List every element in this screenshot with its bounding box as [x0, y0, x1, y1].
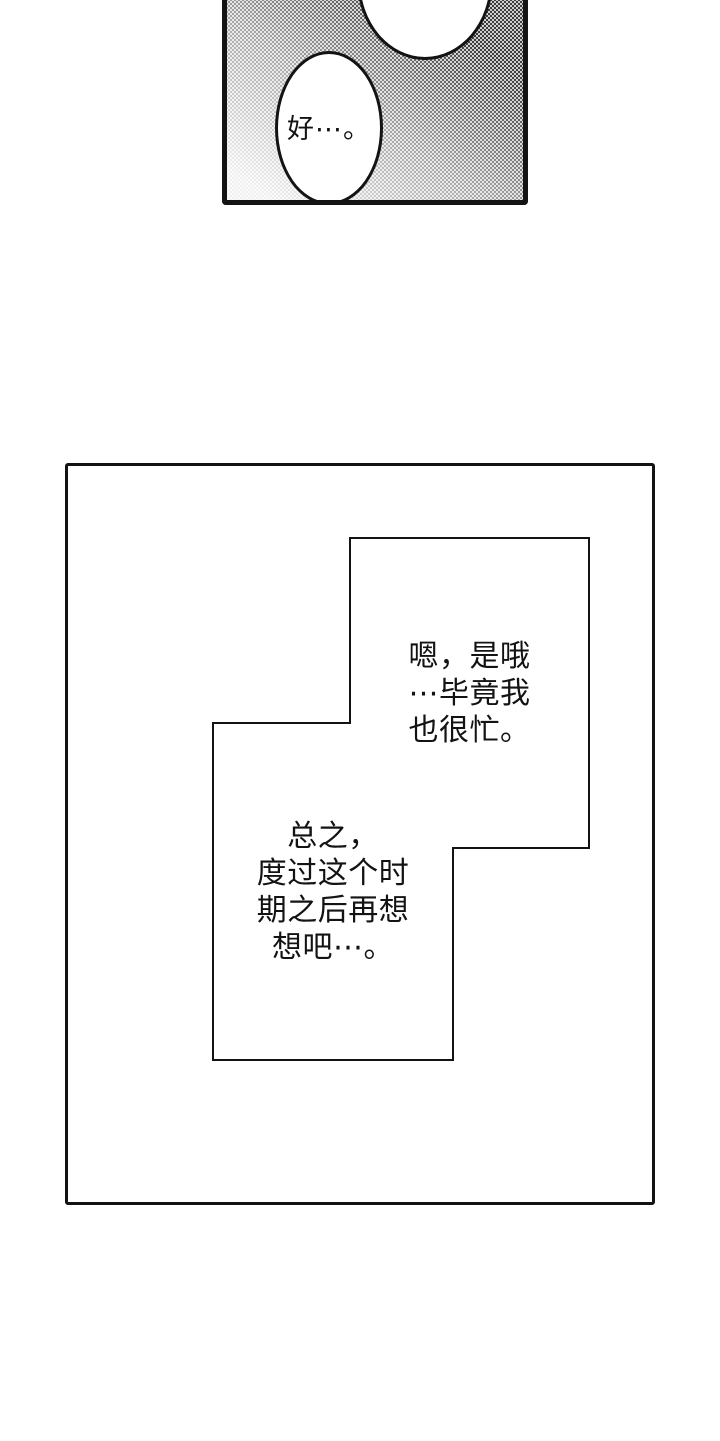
speech-box-left-text: 总之， 度过这个时 期之后再想 想吧⋯。	[213, 723, 453, 1060]
manga-panel-top: 好⋯。	[222, 0, 528, 205]
speech-bubble-oval: 好⋯。	[275, 51, 383, 205]
speech-line: 总之，	[287, 818, 379, 855]
speech-line: 嗯，是哦	[409, 638, 531, 675]
speech-bubble-partial	[357, 0, 493, 60]
speech-line: 期之后再想	[257, 892, 410, 929]
speech-bubble-text: 好⋯。	[287, 107, 371, 146]
speech-line: 度过这个时	[257, 855, 410, 892]
speech-line: ⋯毕竟我	[409, 675, 531, 712]
comic-page: 好⋯。 嗯，是哦 ⋯毕竟我 也很忙。 总之， 度过这个时 期之后再想 想吧⋯。	[0, 0, 720, 1441]
manga-panel-main: 嗯，是哦 ⋯毕竟我 也很忙。 总之， 度过这个时 期之后再想 想吧⋯。	[65, 463, 655, 1205]
speech-line: 想吧⋯。	[272, 929, 394, 966]
